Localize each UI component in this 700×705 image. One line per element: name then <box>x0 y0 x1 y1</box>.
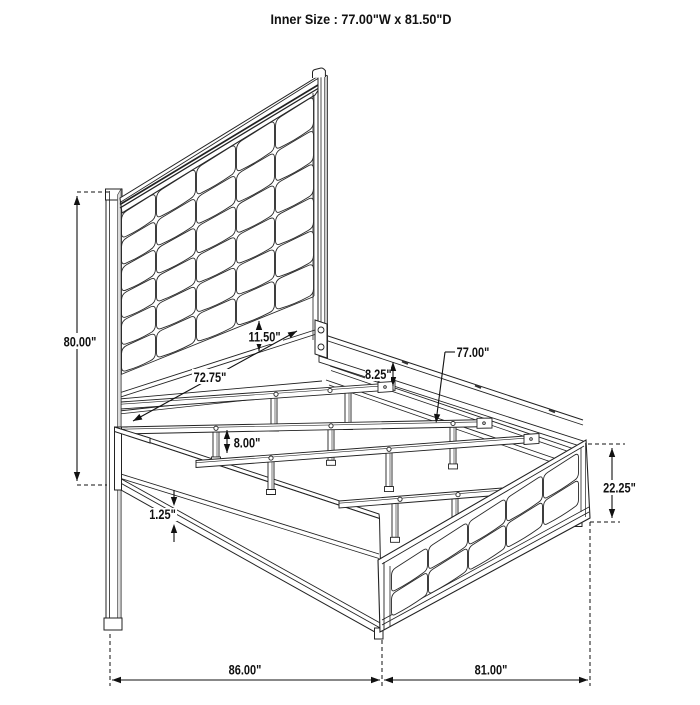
svg-text:80.00": 80.00" <box>64 334 97 350</box>
svg-text:86.00": 86.00" <box>229 662 262 678</box>
svg-text:72.75": 72.75" <box>194 369 227 385</box>
svg-text:1.25": 1.25" <box>149 506 176 522</box>
svg-text:77.00": 77.00" <box>457 344 490 360</box>
svg-text:Inner Size : 77.00"W x 81.50"D: Inner Size : 77.00"W x 81.50"D <box>271 12 452 27</box>
svg-text:22.25": 22.25" <box>603 480 636 496</box>
svg-text:8.00": 8.00" <box>234 435 261 451</box>
svg-text:8.25": 8.25" <box>365 366 392 382</box>
svg-text:81.00": 81.00" <box>475 662 508 678</box>
